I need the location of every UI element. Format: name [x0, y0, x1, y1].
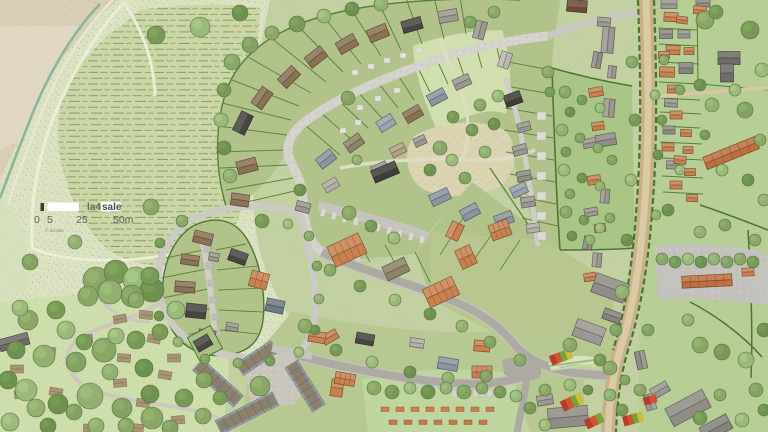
svg-text:© la4sale: © la4sale [45, 227, 64, 233]
svg-text:0: 0 [34, 214, 40, 226]
svg-text:50m: 50m [113, 214, 134, 226]
svg-text:25: 25 [76, 214, 88, 226]
svg-text:sale: sale [102, 202, 122, 213]
svg-text:la4: la4 [87, 202, 101, 213]
svg-text:5: 5 [47, 214, 53, 226]
